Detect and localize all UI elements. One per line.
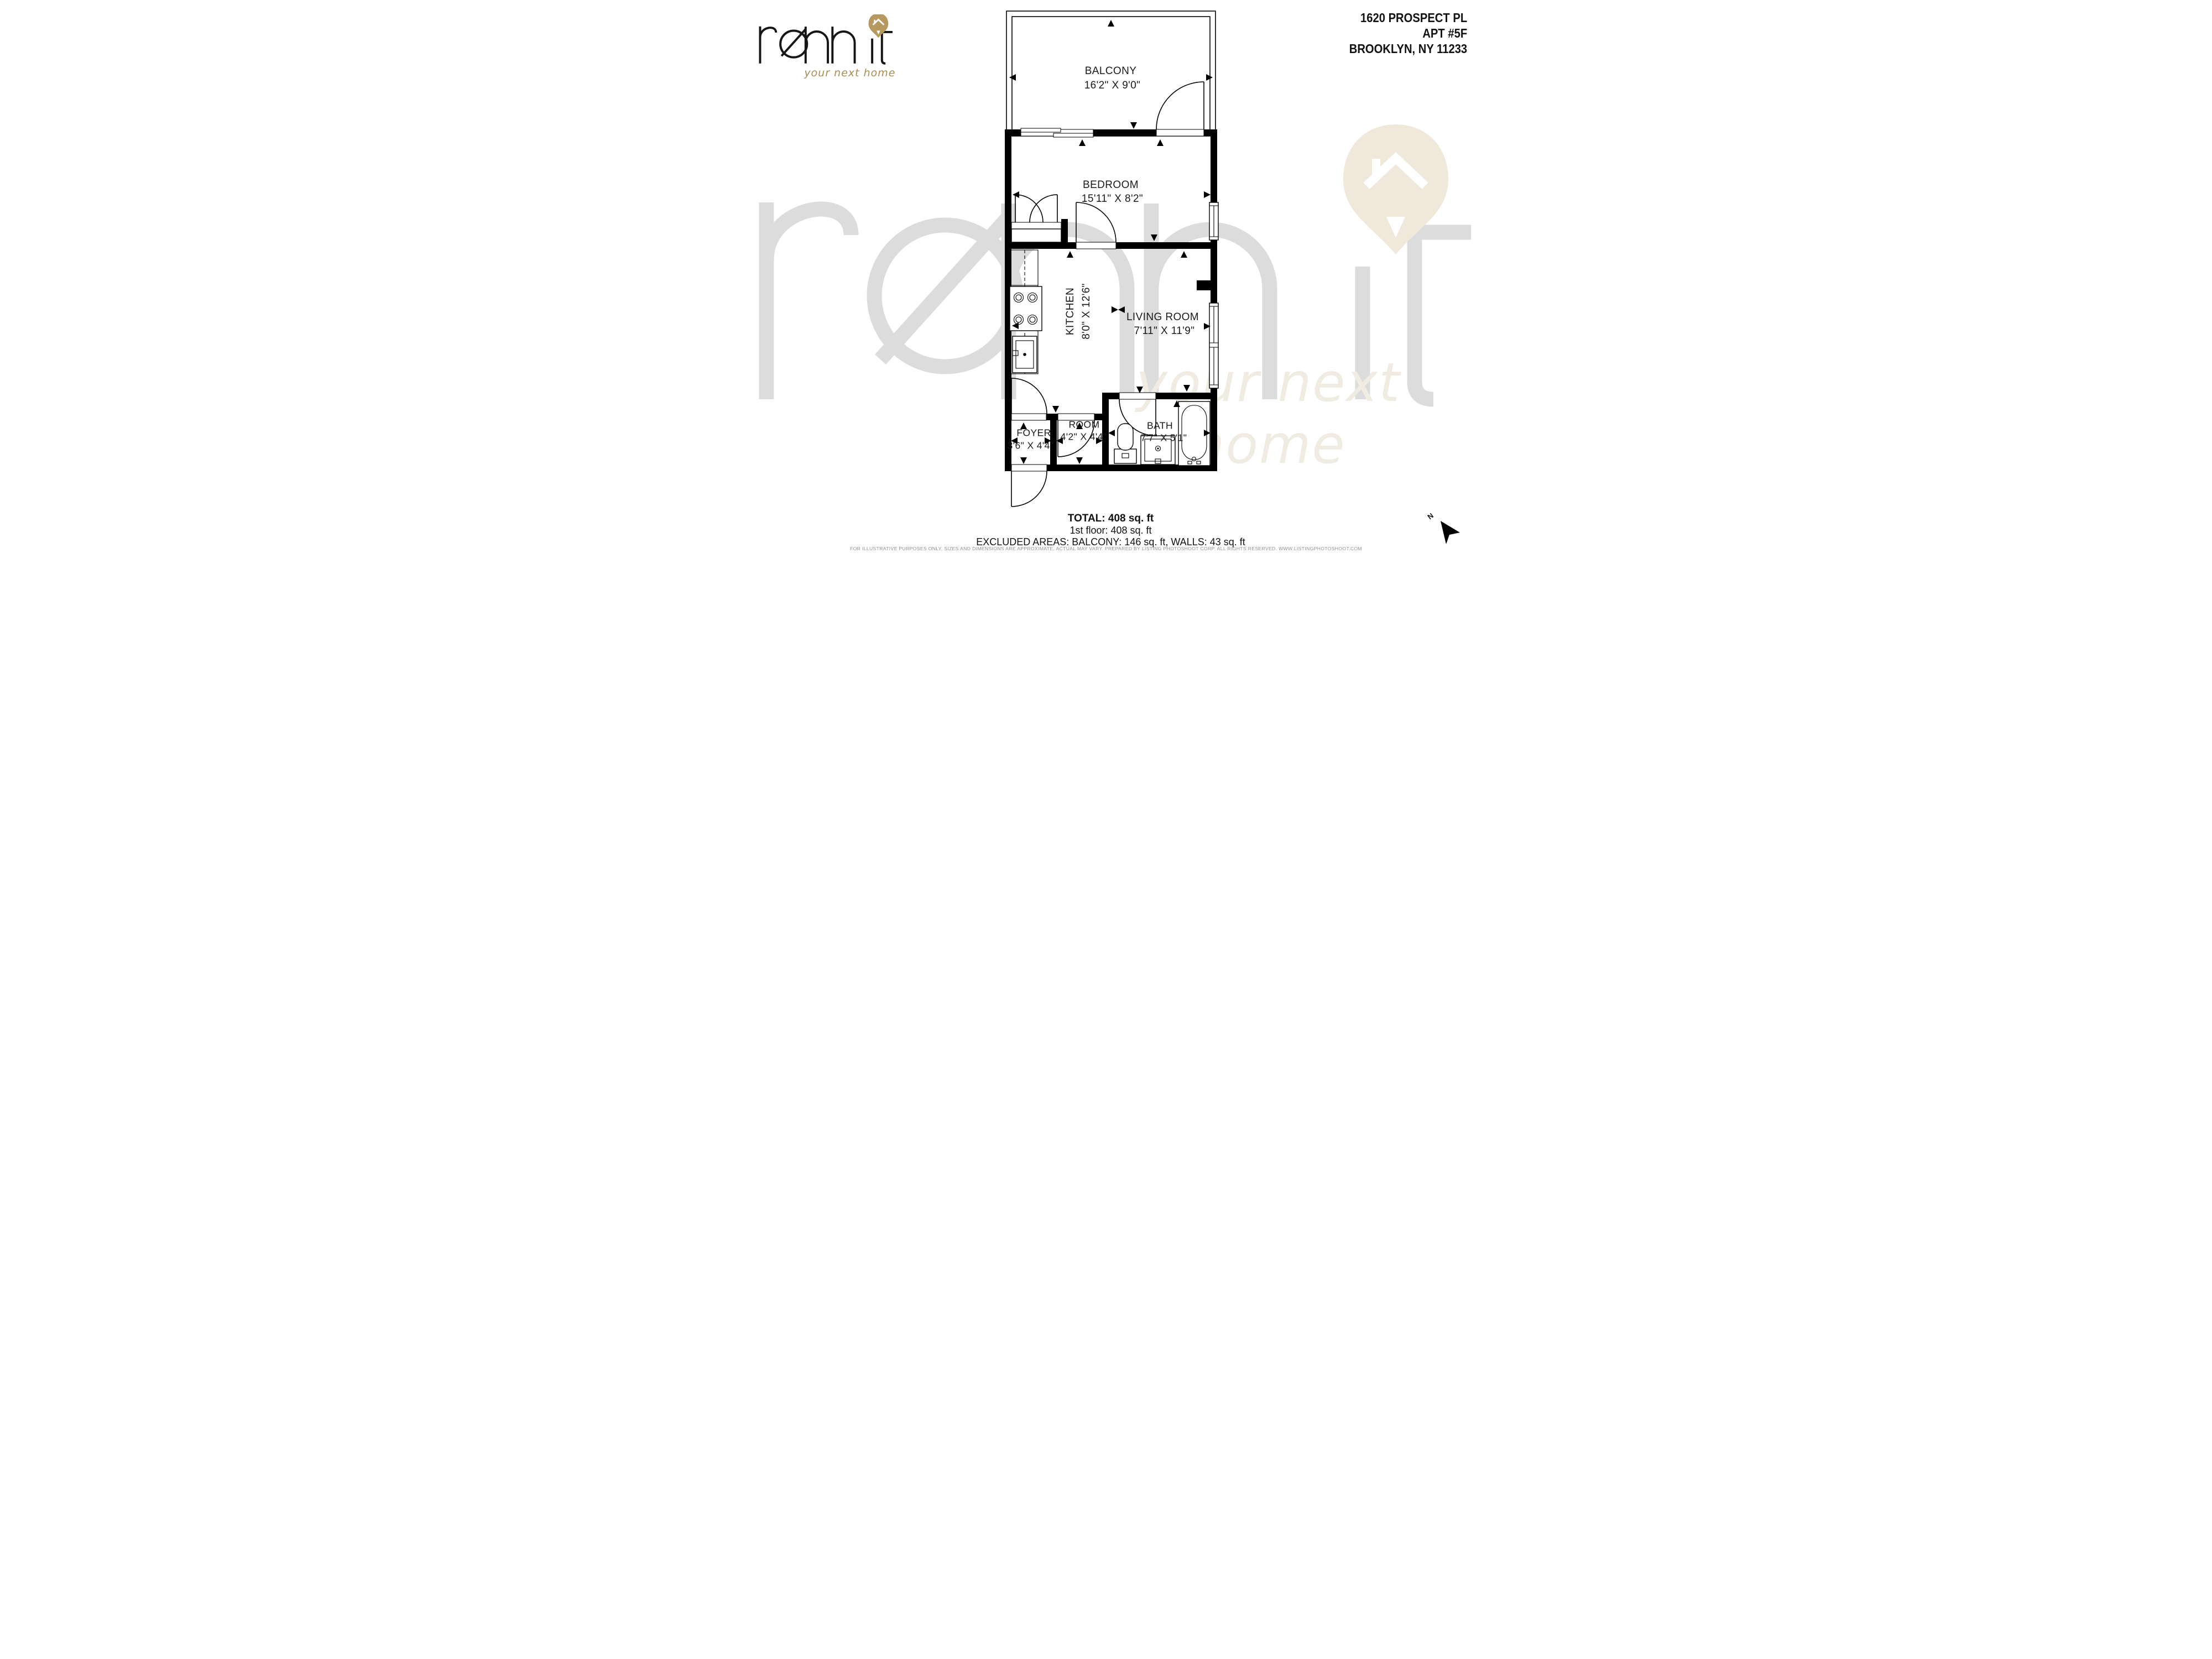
stove [1010, 286, 1042, 331]
north-arrow-icon [1441, 521, 1460, 544]
wall-closet-divider [1061, 219, 1068, 249]
address-line3: BROOKLYN, NY 11233 [1349, 41, 1467, 56]
room-label: ROOM [1068, 419, 1099, 431]
kitchen-dim: 8'0" X 12'6" [1081, 283, 1093, 340]
kitchen-door-opening [1011, 414, 1046, 420]
logo-house-pin-icon [868, 14, 888, 38]
living-room-label: LIVING ROOM [1126, 311, 1199, 324]
bedroom-window [1209, 202, 1218, 240]
toilet [1114, 424, 1136, 463]
bedroom-door-opening [1076, 242, 1116, 249]
entry-door [1011, 471, 1047, 507]
kitchen-sink [1013, 336, 1037, 373]
disclaimer-text: FOR ILLUSTRATIVE PURPOSES ONLY. SIZES AN… [738, 546, 1475, 551]
balcony-dim: 16'2" X 9'0" [1084, 80, 1141, 92]
address-line1: 1620 PROSPECT PL [1349, 10, 1467, 25]
floorplan-page: your next home [738, 0, 1475, 553]
living-room-windows [1209, 303, 1218, 388]
logo-tagline: your next home [759, 67, 898, 79]
room-dim: 4'2" X 4'4" [1061, 431, 1107, 443]
living-room-dim: 7'11" X 11'9" [1134, 325, 1195, 337]
kitchen-label: KITCHEN [1065, 288, 1077, 335]
bedroom-door [1076, 202, 1116, 242]
bath-label: BATH [1147, 420, 1173, 432]
area-summary: TOTAL: 408 sq. ft 1st floor: 408 sq. ft … [928, 513, 1294, 548]
bath-door-opening [1119, 393, 1156, 399]
rennit-wordmark-graphic [759, 14, 898, 66]
wall-jog-right [1197, 280, 1211, 290]
balcony-door [1156, 82, 1204, 129]
foyer-dim: 3'6" X 4'4" [1008, 440, 1054, 452]
property-address: 1620 PROSPECT PL APT #5F BROOKLYN, NY 11… [1330, 10, 1467, 56]
closet [1011, 195, 1061, 242]
rennit-logo: your next home [759, 14, 898, 79]
address-line2: APT #5F [1349, 25, 1467, 41]
wall-right [1211, 129, 1217, 471]
balcony-label: BALCONY [1085, 65, 1137, 77]
floor1-area: 1st floor: 408 sq. ft [928, 525, 1294, 536]
entry-door-opening [1011, 465, 1047, 471]
kitchen-door [1011, 378, 1047, 414]
foyer-label: FOYER [1016, 427, 1051, 439]
bath-dim: 7'7" X 5'1" [1141, 432, 1187, 444]
balcony-door-opening [1156, 129, 1204, 136]
bedroom-dim: 15'11" X 8'2" [1082, 193, 1143, 205]
total-area: TOTAL: 408 sq. ft [928, 513, 1294, 525]
bedroom-label: BEDROOM [1083, 179, 1139, 191]
